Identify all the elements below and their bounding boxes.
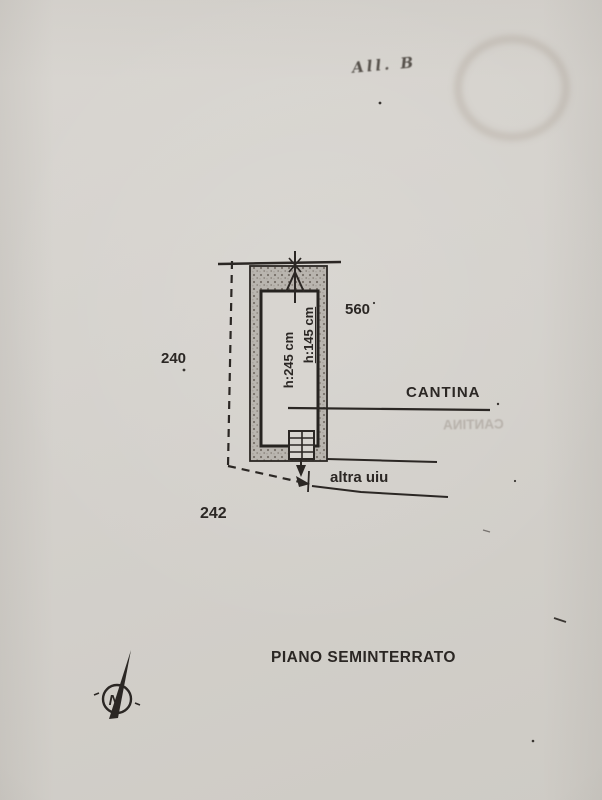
altra-uiu-leader-line bbox=[312, 486, 448, 497]
floor-plan-drawing: N bbox=[0, 0, 602, 800]
north-letter: N bbox=[109, 692, 121, 709]
room-height-main: h:245 cm bbox=[281, 319, 297, 401]
north-arrow-icon: N bbox=[94, 650, 140, 719]
parcel-number-560: 560 bbox=[345, 301, 370, 318]
parcel-number-242: 242 bbox=[200, 505, 227, 523]
floor-title: PIANO SEMINTERRATO bbox=[271, 649, 456, 667]
boundary-line-top bbox=[218, 262, 341, 264]
stairs-symbol-icon bbox=[289, 431, 314, 477]
scan-specks bbox=[183, 102, 566, 743]
room-label-cantina: CANTINA bbox=[406, 384, 481, 401]
adjacent-unit-label: altra uiu bbox=[330, 469, 388, 486]
boundary-line-bottom bbox=[327, 459, 437, 462]
parcel-number-240: 240 bbox=[161, 350, 186, 367]
bleed-through-cantina: CANTINA bbox=[443, 416, 504, 432]
altra-uiu-tick bbox=[308, 471, 309, 492]
scanned-floor-plan-photo: N All. B 240 242 560 h:245 cm h:145 cm C… bbox=[0, 0, 602, 800]
stamp-ghost bbox=[458, 39, 566, 137]
room-height-secondary: h:145 cm bbox=[301, 294, 317, 376]
